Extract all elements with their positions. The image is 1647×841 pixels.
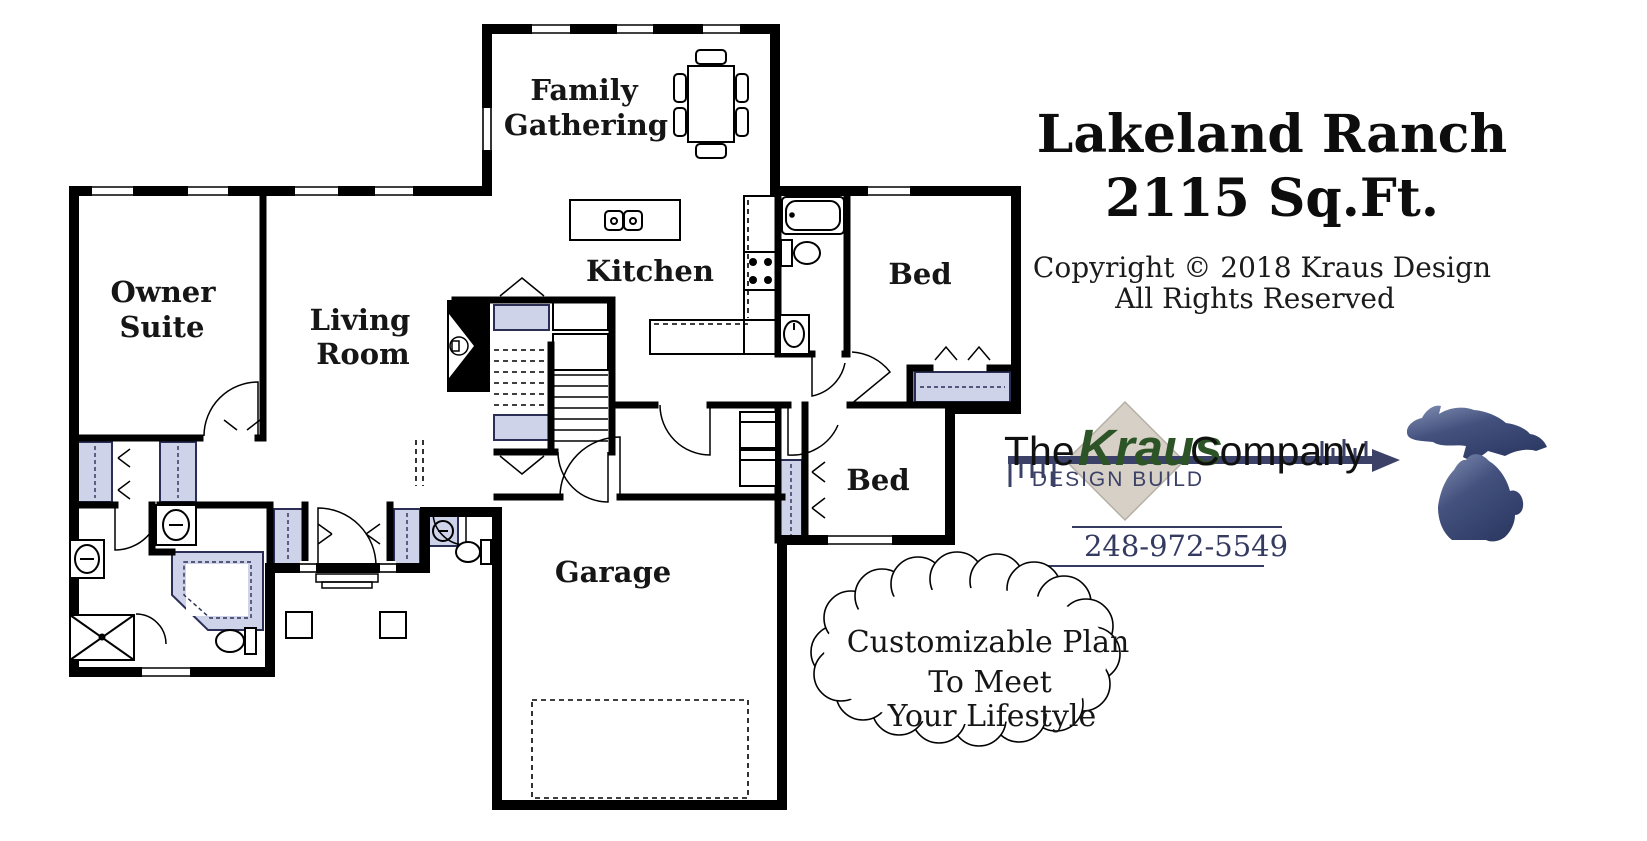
closet-chevron	[118, 481, 130, 499]
window	[188, 184, 228, 198]
porch-column	[380, 612, 406, 638]
closet-chevron	[812, 462, 825, 482]
closet-chevron	[968, 347, 990, 360]
label-living-2: Room	[316, 337, 410, 371]
window	[480, 108, 494, 150]
fixtures	[70, 50, 844, 798]
stair-cabinet	[553, 302, 608, 330]
interior-walls	[74, 191, 1016, 568]
closet-chevron	[318, 524, 332, 544]
plan-title: Lakeland Ranch	[1037, 104, 1507, 165]
label-family-1: Family	[530, 73, 639, 107]
floor-plan-sheet: Family Gathering Kitchen Owner Suite Liv…	[0, 0, 1647, 841]
stair-cabinet-bottom	[494, 415, 549, 440]
window	[828, 533, 892, 547]
shower	[70, 615, 134, 660]
logo-tagline: DESIGN BUILD	[1032, 468, 1204, 491]
closet-chevron	[812, 498, 825, 518]
window	[295, 184, 338, 198]
label-bed-lower: Bed	[846, 463, 909, 497]
bed-upper-door	[850, 352, 890, 405]
hall-door	[558, 452, 608, 502]
kitchen-island	[570, 200, 680, 240]
logo-company: Company	[1190, 428, 1366, 474]
closet-chevron	[935, 347, 957, 360]
laundry-door	[660, 405, 710, 455]
toilet	[781, 240, 820, 266]
callout-line-3: Your Lifestyle	[887, 699, 1097, 734]
arrow-icon	[1372, 449, 1400, 472]
entry-sidelite	[380, 561, 396, 575]
label-garage: Garage	[555, 555, 671, 589]
stair-cabinet	[553, 334, 608, 370]
window	[868, 184, 910, 198]
closet-chevron	[224, 420, 260, 430]
stair-arrow-down	[500, 456, 544, 474]
copyright-line-1: Copyright © 2018 Kraus Design	[1033, 251, 1491, 284]
closet-chevron	[118, 449, 130, 467]
callout-line-1: Customizable Plan	[847, 625, 1130, 660]
plan-sqft: 2115 Sq.Ft.	[1105, 168, 1439, 229]
dining-table	[674, 50, 748, 158]
entry-step	[316, 574, 378, 588]
label-owner-1: Owner	[110, 275, 216, 309]
owner-toilet	[216, 628, 256, 654]
window	[617, 22, 653, 36]
label-owner-2: Suite	[120, 310, 205, 344]
label-bed-upper: Bed	[888, 257, 951, 291]
bed-lower-door	[788, 405, 838, 455]
closet-chevron	[366, 524, 380, 544]
michigan-map-icon	[1407, 406, 1547, 542]
shower-door	[136, 614, 166, 644]
page: Family Gathering Kitchen Owner Suite Liv…	[0, 0, 1647, 841]
powder-toilet	[456, 540, 491, 564]
callout-line-2: To Meet	[928, 665, 1052, 700]
porch-column	[286, 612, 312, 638]
kraus-logo: The Kraus Company DESIGN BUILD 248-972-5…	[1004, 402, 1400, 566]
label-kitchen: Kitchen	[586, 254, 714, 288]
window	[532, 22, 570, 36]
window	[142, 665, 190, 679]
washer-dryer	[740, 412, 776, 486]
owner-sink-1	[70, 540, 104, 578]
bathtub	[782, 197, 844, 234]
label-family-2: Gathering	[504, 108, 668, 142]
owner-sink-2	[156, 505, 196, 545]
copyright-line-2: All Rights Reserved	[1114, 282, 1395, 315]
title-block: Lakeland Ranch 2115 Sq.Ft. Copyright © 2…	[1033, 104, 1507, 315]
owner-closet-b	[160, 442, 196, 502]
owner-closet-a	[78, 442, 112, 502]
stair-arrow-up	[500, 278, 544, 296]
stair-cabinet-top	[494, 305, 549, 330]
attic-access	[416, 440, 423, 486]
label-living-1: Living	[310, 303, 411, 337]
bath-door	[812, 354, 845, 396]
bath-sink	[780, 315, 809, 354]
fireplace	[447, 300, 490, 392]
garage-door-pad	[532, 700, 748, 798]
window	[375, 184, 413, 198]
window	[703, 22, 740, 36]
entry-sidelite	[300, 561, 316, 575]
window	[92, 184, 133, 198]
cloud-callout: Customizable Plan To Meet Your Lifestyle	[811, 552, 1129, 746]
phone-number: 248-972-5549	[1084, 529, 1288, 563]
